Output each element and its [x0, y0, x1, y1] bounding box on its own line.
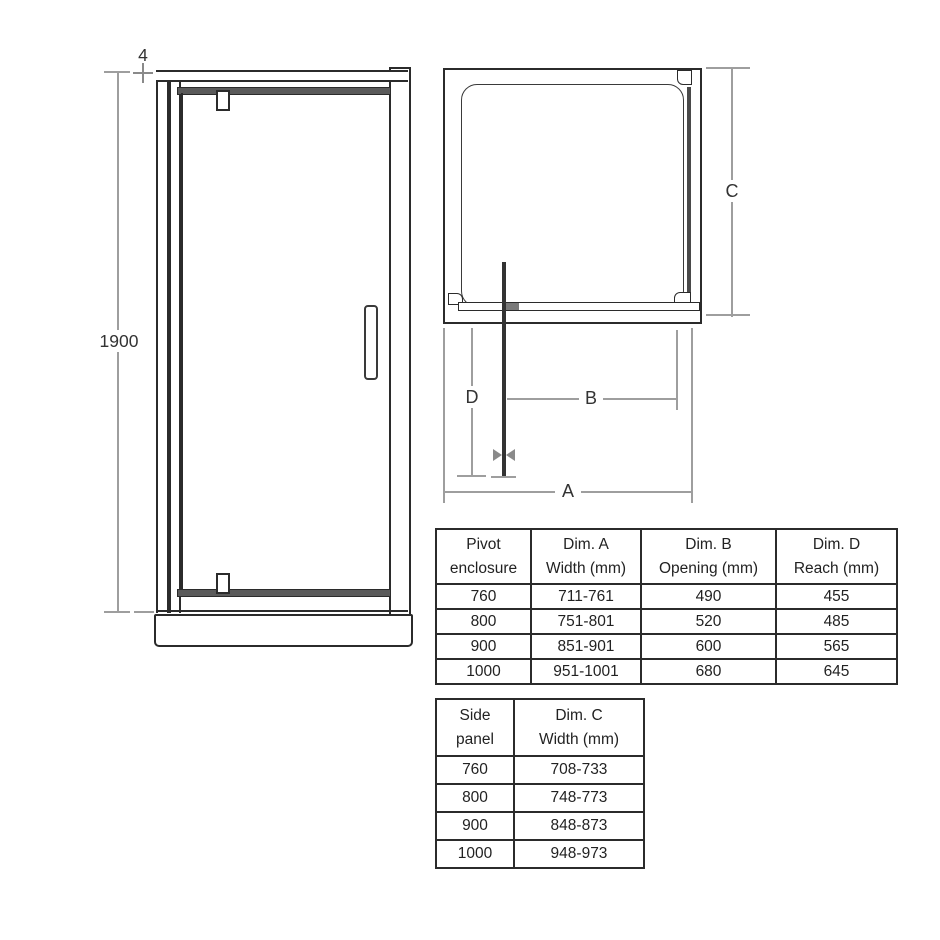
table-row: 760 708-733: [436, 756, 644, 784]
plan-tray-inner-edge: [461, 84, 684, 307]
table-cell: 760: [436, 584, 531, 609]
header-line: Dim. C: [515, 704, 643, 728]
table-cell: 1000: [436, 659, 531, 684]
pivot-hinge-bottom: [216, 573, 230, 594]
table-row: 800 748-773: [436, 784, 644, 812]
header-line: Opening (mm): [642, 557, 775, 581]
side-panel-col-header: Side panel: [436, 699, 514, 756]
door-top-rail: [177, 87, 391, 95]
table-cell: 711-761: [531, 584, 641, 609]
technical-drawing-canvas: 1900 4: [0, 0, 940, 940]
header-line: Reach (mm): [777, 557, 896, 581]
dim-c-top-tick: [706, 67, 750, 69]
door-bottom-rail: [177, 589, 391, 597]
dim-d-bottom-tick: [457, 475, 486, 477]
plan-door-handle-left-wing: [493, 449, 502, 461]
header-line: Width (mm): [515, 728, 643, 752]
table-cell: 851-901: [531, 634, 641, 659]
frame-bottom-line: [156, 610, 408, 612]
side-panel-table: Side panel Dim. C Width (mm) 760 708-733…: [435, 698, 645, 869]
side-panel-glass: [687, 87, 691, 305]
plan-door-sill: [458, 302, 700, 311]
table-cell: 600: [641, 634, 776, 659]
height-dimension-top-tick: [104, 71, 130, 73]
plan-open-door: [502, 262, 506, 478]
height-dimension-bottom-tick: [104, 611, 130, 613]
wall-bracket-top-right: [677, 70, 692, 85]
table-cell: 490: [641, 584, 776, 609]
height-dimension-label: 1900: [93, 330, 145, 352]
door-left-stile: [181, 93, 183, 589]
table-cell: 948-973: [514, 840, 644, 868]
table-cell: 760: [436, 756, 514, 784]
table-cell: 455: [776, 584, 897, 609]
header-line: Dim. A: [532, 533, 640, 557]
pivot-enclosure-table: Pivot enclosure Dim. A Width (mm) Dim. B…: [435, 528, 898, 685]
header-line: Width (mm): [532, 557, 640, 581]
pivot-hinge-top: [216, 90, 230, 111]
pivot-col-header: Pivot enclosure: [436, 529, 531, 584]
header-line: panel: [437, 728, 513, 752]
header-line: Pivot: [437, 533, 530, 557]
table-cell: 751-801: [531, 609, 641, 634]
header-line: enclosure: [437, 557, 530, 581]
table-header-row: Side panel Dim. C Width (mm): [436, 699, 644, 756]
table-cell: 800: [436, 609, 531, 634]
wall-profile-right: [389, 67, 411, 617]
table-header-row: Pivot enclosure Dim. A Width (mm) Dim. B…: [436, 529, 897, 584]
table-cell: 848-873: [514, 812, 644, 840]
plan-door-handle-right-wing: [506, 449, 515, 461]
table-cell: 680: [641, 659, 776, 684]
table-row: 760 711-761 490 455: [436, 584, 897, 609]
dim-a-extension-right: [691, 328, 693, 503]
header-line: Dim. D: [777, 533, 896, 557]
table-cell: 485: [776, 609, 897, 634]
table-cell: 748-773: [514, 784, 644, 812]
dim-a-extension-left: [443, 328, 445, 503]
table-row: 900 848-873: [436, 812, 644, 840]
table-row: 800 751-801 520 485: [436, 609, 897, 634]
table-row: 1000 948-973: [436, 840, 644, 868]
table-cell: 900: [436, 812, 514, 840]
dim-a-label: A: [555, 480, 581, 502]
dim-c-col-header: Dim. C Width (mm): [514, 699, 644, 756]
table-cell: 800: [436, 784, 514, 812]
table-cell: 708-733: [514, 756, 644, 784]
adjustment-profile-left: [169, 70, 181, 613]
dim-d-col-header: Dim. D Reach (mm): [776, 529, 897, 584]
shower-tray-front: [154, 614, 413, 647]
header-line: Side: [437, 704, 513, 728]
door-end-dash: [491, 476, 516, 478]
plan-pivot-block: [506, 303, 519, 310]
table-cell: 900: [436, 634, 531, 659]
table-row: 900 851-901 600 565: [436, 634, 897, 659]
table-cell: 951-1001: [531, 659, 641, 684]
height-dimension-extension-dash: [134, 611, 154, 613]
dim-d-label: D: [461, 386, 483, 408]
table-row: 1000 951-1001 680 645: [436, 659, 897, 684]
table-cell: 520: [641, 609, 776, 634]
dim-b-label: B: [579, 387, 603, 409]
table-cell: 645: [776, 659, 897, 684]
table-cell: 565: [776, 634, 897, 659]
dim-c-bottom-tick: [706, 314, 750, 316]
table-cell: 1000: [436, 840, 514, 868]
header-line: Dim. B: [642, 533, 775, 557]
adjustment-tick-horizontal: [133, 72, 153, 74]
door-handle: [364, 305, 378, 380]
dim-b-col-header: Dim. B Opening (mm): [641, 529, 776, 584]
wall-profile-left: [156, 70, 169, 613]
top-header-bar: [156, 70, 408, 82]
dim-c-label: C: [720, 180, 744, 202]
dim-a-col-header: Dim. A Width (mm): [531, 529, 641, 584]
